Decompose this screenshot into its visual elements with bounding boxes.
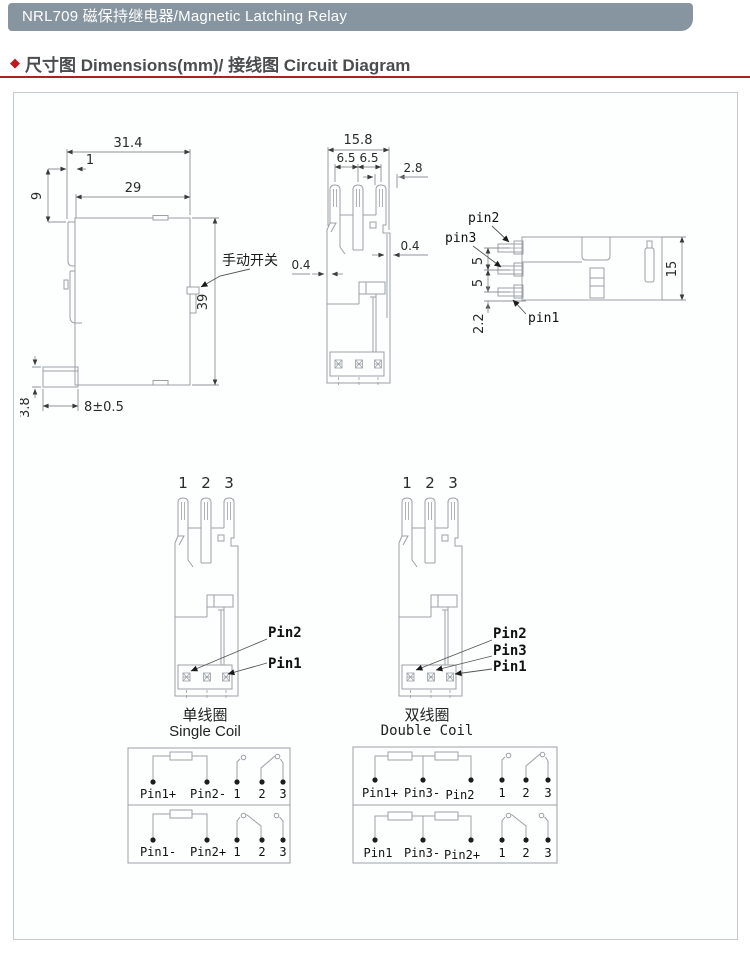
circuit-double-drawing: Pin1+ Pin3- Pin2 1 2 3 Pin1 Pin3- Pin2+ … xyxy=(345,740,570,870)
pinout-single-num2: 2 xyxy=(201,474,211,492)
cd-r1-pin-left: Pin1+ xyxy=(362,786,398,800)
pinout-double-pin3-label: Pin3 xyxy=(493,643,527,659)
pinout-double-pin2-label: Pin2 xyxy=(493,626,527,642)
circuit-double-contacts-row1 xyxy=(502,752,548,780)
double-coil-caption-zh: 双线圈 xyxy=(367,704,487,725)
single-coil-caption-en: Single Coil xyxy=(145,723,265,740)
header-bar: NRL709 磁保持继电器/Magnetic Latching Relay xyxy=(8,3,693,31)
circuit-double-contacts-row2 xyxy=(502,813,548,840)
cd-r1-t2: 2 xyxy=(522,786,529,800)
diamond-bullet-icon: ◆ xyxy=(10,55,20,71)
pinout-single-num1: 1 xyxy=(178,474,188,492)
end-view-pin3-label: pin3 xyxy=(445,231,476,246)
pinout-double-drawing: 1 2 3 Pin2 Pin3 Pin1 xyxy=(370,470,570,720)
cs-r2-t2: 2 xyxy=(258,845,265,859)
pinout-double-leaders xyxy=(416,640,492,674)
dim-body-width-label: 29 xyxy=(125,181,142,196)
dim-foot-height-label: 3.8 xyxy=(20,397,33,418)
dim-pitch-left-label: 6.5 xyxy=(336,151,355,165)
dim-total-width-label: 31.4 xyxy=(114,136,143,151)
pinout-double-pin1-label: Pin1 xyxy=(493,659,527,675)
cs-r1-t1: 1 xyxy=(233,787,240,801)
cs-r2-pin-right: Pin2+ xyxy=(190,845,226,859)
pinout-single-drawing: 1 2 3 Pin2 Pin1 xyxy=(140,470,340,720)
dim-offset-label: 2.2 xyxy=(472,313,487,334)
end-view-pin1-label: pin1 xyxy=(528,311,559,326)
end-view-pin2-label: pin2 xyxy=(468,211,499,226)
cd-r2-pin-mid: Pin3- xyxy=(404,846,440,860)
side-view-outline xyxy=(43,216,199,388)
circuit-single-contacts-row2 xyxy=(237,813,283,840)
cd-r2-t2: 2 xyxy=(522,846,529,860)
dim-body-height-label: 39 xyxy=(196,294,211,311)
cs-r2-pin-left: Pin1- xyxy=(140,845,176,859)
cs-r2-t3: 3 xyxy=(279,845,286,859)
dim-wall-right-label: 0.4 xyxy=(400,239,419,253)
pinout-double-outline xyxy=(399,498,462,699)
front-view-outline xyxy=(327,185,390,386)
section-title-row: ◆ 尺寸图 Dimensions(mm)/ 接线图 Circuit Diagra… xyxy=(10,52,410,74)
cs-r2-t1: 1 xyxy=(233,845,240,859)
dim-gap-bottom-label: 5 xyxy=(471,279,486,287)
pinout-single-pin2-label: Pin2 xyxy=(268,625,302,641)
side-view-drawing: 31.4 1 9 29 39 8±0.5 3.8 手动开关 xyxy=(20,135,290,435)
datasheet-page: NRL709 磁保持继电器/Magnetic Latching Relay ◆ … xyxy=(0,0,750,969)
pinout-single-outline xyxy=(175,498,238,699)
circuit-single-drawing: Pin1+ Pin2- 1 2 3 Pin1- Pin2+ 1 2 3 xyxy=(120,740,305,870)
pinout-double-num3: 3 xyxy=(448,474,458,492)
manual-switch-label: 手动开关 xyxy=(222,253,278,269)
pinout-double-num1: 1 xyxy=(402,474,412,492)
dim-top-height-label: 9 xyxy=(30,192,45,200)
dim-wall-left-label: 0.4 xyxy=(291,258,310,272)
pinout-single-leaders xyxy=(191,639,267,674)
cd-r1-t3: 3 xyxy=(544,786,551,800)
double-coil-caption-en: Double Coil xyxy=(367,723,487,739)
pinout-single-pin1-label: Pin1 xyxy=(268,656,302,672)
cd-r2-pin-left: Pin1 xyxy=(364,846,393,860)
cd-r1-pin-right: Pin2 xyxy=(446,788,475,802)
dim-foot-width-label: 8±0.5 xyxy=(84,400,124,415)
dim-height-label: 15 xyxy=(665,261,680,278)
cs-r1-t3: 3 xyxy=(279,787,286,801)
dim-front-width-label: 15.8 xyxy=(344,133,373,148)
red-divider xyxy=(0,76,750,78)
dim-pin-offset-label: 1 xyxy=(86,153,94,168)
single-coil-caption-zh: 单线圈 xyxy=(145,704,265,725)
pinout-double-num2: 2 xyxy=(425,474,435,492)
cs-r1-t2: 2 xyxy=(258,787,265,801)
cd-r1-t1: 1 xyxy=(498,786,505,800)
cd-r2-t1: 1 xyxy=(498,846,505,860)
section-title: 尺寸图 Dimensions(mm)/ 接线图 Circuit Diagram xyxy=(25,51,410,76)
cs-r1-pin-right: Pin2- xyxy=(190,787,226,801)
circuit-single-contacts-row1 xyxy=(237,754,283,782)
cs-r1-pin-left: Pin1+ xyxy=(140,787,176,801)
cd-r1-pin-mid: Pin3- xyxy=(404,786,440,800)
pinout-single-num3: 3 xyxy=(224,474,234,492)
end-view-outline xyxy=(498,237,662,300)
dim-gap-top-label: 5 xyxy=(471,257,486,265)
dim-tab-label: 2.8 xyxy=(403,161,422,175)
header-title: NRL709 磁保持继电器/Magnetic Latching Relay xyxy=(22,8,347,25)
end-view-drawing: pin2 pin3 pin1 5 5 2.2 15 xyxy=(440,200,700,345)
cd-r2-pin-right: Pin2+ xyxy=(444,848,480,862)
cd-r2-t3: 3 xyxy=(544,846,551,860)
dim-pitch-right-label: 6.5 xyxy=(359,151,378,165)
